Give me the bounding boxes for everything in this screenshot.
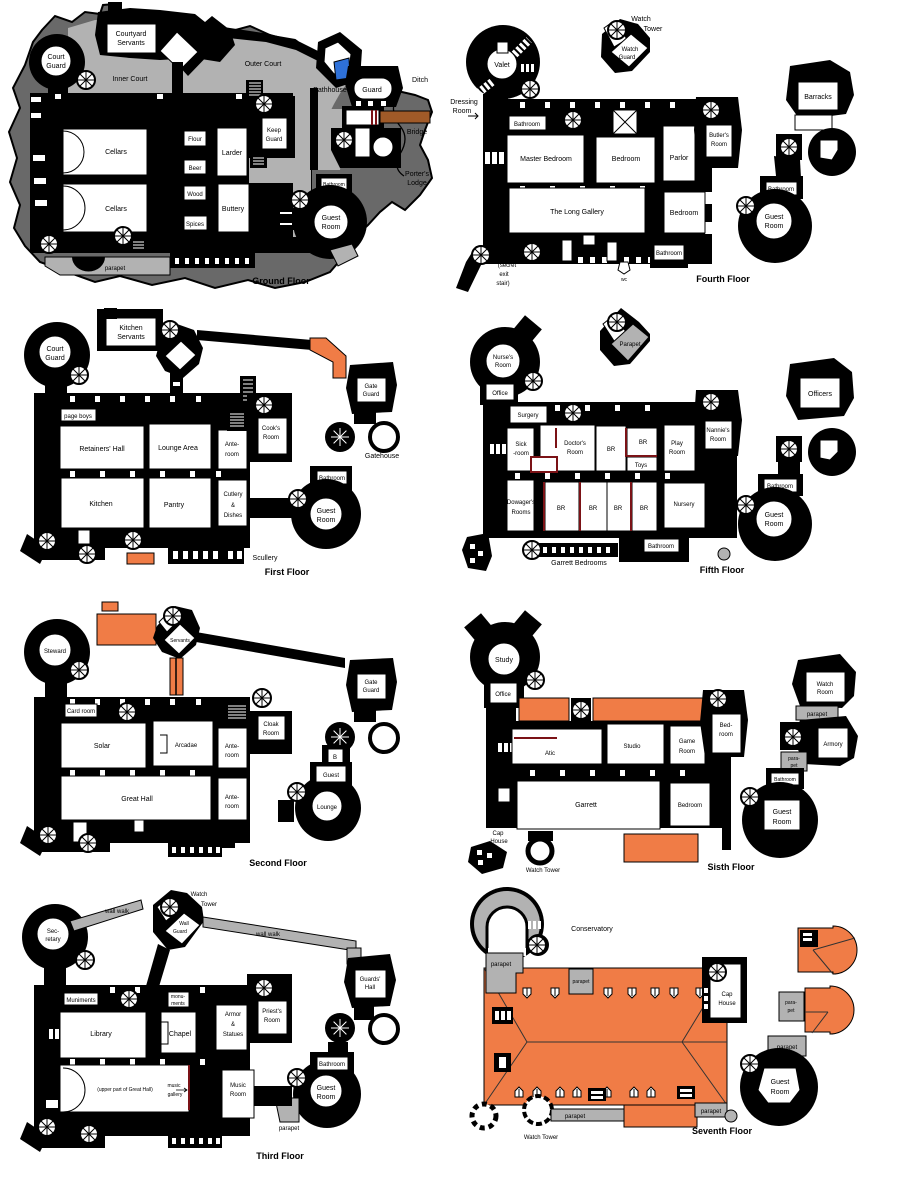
svg-text:Room: Room — [567, 450, 583, 456]
svg-text:parapet: parapet — [573, 979, 591, 985]
svg-text:wc: wc — [107, 312, 114, 318]
svg-text:&: & — [231, 503, 235, 509]
svg-text:Retainers' Hall: Retainers' Hall — [79, 446, 125, 453]
svg-text:BR: BR — [607, 447, 616, 453]
svg-text:Garrett Bedrooms: Garrett Bedrooms — [551, 560, 607, 567]
svg-text:Studio: Studio — [623, 744, 641, 750]
svg-text:Guard: Guard — [266, 137, 283, 143]
svg-text:Gate: Gate — [364, 384, 378, 390]
svg-text:Guest: Guest — [765, 512, 784, 519]
svg-text:BR: BR — [639, 440, 648, 446]
svg-text:Room: Room — [453, 108, 472, 115]
svg-text:wc: wc — [718, 763, 725, 769]
svg-text:Valet: Valet — [494, 62, 509, 69]
svg-text:Kitchen: Kitchen — [89, 501, 112, 508]
svg-text:wc: wc — [229, 539, 236, 545]
svg-text:Bathhouse: Bathhouse — [313, 87, 347, 94]
svg-text:Fourth Floor: Fourth Floor — [696, 274, 750, 284]
svg-text:stair): stair) — [496, 281, 509, 287]
svg-text:Guard: Guard — [619, 55, 636, 61]
svg-text:wc: wc — [41, 423, 48, 429]
svg-text:Watch: Watch — [631, 16, 651, 23]
svg-text:gallery: gallery — [168, 1092, 183, 1098]
svg-text:Room: Room — [264, 1018, 280, 1024]
svg-text:para-: para- — [788, 756, 800, 762]
svg-text:Guard: Guard — [363, 392, 380, 398]
svg-text:Cap: Cap — [492, 831, 504, 837]
svg-text:Lounge: Lounge — [317, 805, 338, 811]
svg-text:Guard: Guard — [173, 929, 187, 935]
svg-text:parapet: parapet — [565, 1114, 586, 1120]
svg-text:Bedroom: Bedroom — [670, 210, 699, 217]
svg-text:wall walk: wall walk — [104, 909, 130, 915]
svg-text:Servants: Servants — [117, 40, 145, 47]
svg-text:Servants: Servants — [170, 638, 190, 644]
svg-text:Wood: Wood — [187, 192, 203, 198]
svg-text:Toys: Toys — [635, 463, 647, 469]
svg-text:Statues: Statues — [223, 1032, 243, 1038]
svg-text:Flour: Flour — [188, 137, 202, 143]
svg-text:pet: pet — [788, 1008, 796, 1014]
svg-text:page boys: page boys — [64, 414, 92, 420]
svg-text:wc: wc — [621, 277, 628, 283]
svg-text:Room: Room — [263, 731, 279, 737]
svg-text:Guards': Guards' — [360, 977, 381, 983]
svg-text:music: music — [167, 1083, 181, 1089]
svg-text:Room: Room — [669, 450, 685, 456]
svg-text:Library: Library — [90, 1031, 112, 1038]
svg-text:Bathroom: Bathroom — [656, 251, 682, 257]
svg-text:Garrett: Garrett — [575, 802, 597, 809]
svg-text:Chapel: Chapel — [169, 1031, 192, 1038]
svg-text:Guest: Guest — [765, 214, 784, 221]
svg-text:Room: Room — [765, 223, 784, 230]
svg-text:Play: Play — [671, 441, 683, 447]
svg-text:Room: Room — [711, 142, 727, 148]
svg-text:Servants: Servants — [117, 334, 145, 341]
svg-text:Bathroom: Bathroom — [319, 1062, 345, 1068]
svg-text:room: room — [719, 732, 733, 738]
svg-text:Gatehouse: Gatehouse — [365, 453, 399, 460]
svg-text:Armor: Armor — [225, 1012, 241, 1018]
svg-text:parapet: parapet — [279, 1126, 300, 1132]
svg-text:Barracks: Barracks — [804, 94, 832, 101]
svg-text:Inner Court: Inner Court — [112, 76, 147, 83]
svg-text:Muniments: Muniments — [66, 998, 95, 1004]
svg-text:Guard: Guard — [363, 688, 380, 694]
svg-text:wc: wc — [488, 464, 495, 470]
svg-text:Ground Floor: Ground Floor — [252, 276, 310, 286]
svg-text:First Floor: First Floor — [265, 567, 310, 577]
svg-text:Bathroom: Bathroom — [648, 544, 674, 550]
svg-text:Watch Tower: Watch Tower — [524, 1135, 558, 1141]
svg-text:Master Bedroom: Master Bedroom — [520, 156, 572, 163]
svg-text:Fifth Floor: Fifth Floor — [700, 565, 745, 575]
svg-text:Third Floor: Third Floor — [256, 1151, 304, 1161]
svg-text:Bathroom: Bathroom — [514, 122, 540, 128]
svg-text:Surgery: Surgery — [517, 413, 538, 419]
svg-text:Room: Room — [771, 1089, 790, 1096]
svg-text:Cutlery: Cutlery — [223, 492, 242, 498]
svg-text:Court: Court — [46, 346, 63, 353]
svg-text:(upper part of Great Hall): (upper part of Great Hall) — [97, 1087, 153, 1093]
svg-text:Cap: Cap — [721, 992, 733, 998]
svg-text:wall walk: wall walk — [255, 932, 281, 938]
svg-text:Bed-: Bed- — [720, 723, 733, 729]
svg-text:Pantry: Pantry — [164, 502, 185, 509]
svg-text:Court: Court — [47, 54, 64, 61]
svg-text:Sisth Floor: Sisth Floor — [708, 862, 755, 872]
svg-text:wc: wc — [786, 468, 793, 474]
svg-text:Music: Music — [230, 1083, 246, 1089]
svg-text:Conservatory: Conservatory — [571, 926, 613, 933]
svg-text:Cloak: Cloak — [263, 722, 279, 728]
svg-text:BR: BR — [557, 506, 566, 512]
svg-text:wc: wc — [488, 185, 495, 191]
svg-text:Dowager's: Dowager's — [507, 500, 535, 506]
svg-text:Parapet: Parapet — [619, 342, 640, 348]
svg-text:wc: wc — [41, 997, 48, 1003]
svg-text:Game: Game — [679, 739, 696, 745]
svg-text:BR: BR — [640, 506, 649, 512]
svg-text:Guest: Guest — [317, 1085, 336, 1092]
svg-text:monu-: monu- — [171, 994, 186, 1000]
svg-text:Room: Room — [817, 690, 833, 696]
svg-text:Room: Room — [230, 1092, 246, 1098]
svg-text:Room: Room — [679, 749, 695, 755]
svg-text:(secret: (secret — [498, 263, 517, 269]
svg-text:Guest: Guest — [771, 1079, 790, 1086]
svg-text:Officers: Officers — [808, 391, 832, 398]
svg-text:parapet: parapet — [491, 962, 512, 968]
svg-text:parapet: parapet — [105, 266, 126, 272]
svg-text:Cellars: Cellars — [105, 149, 127, 156]
svg-text:Guard: Guard — [46, 63, 66, 70]
svg-text:Arcadae: Arcadae — [175, 743, 198, 749]
svg-text:Seventh Floor: Seventh Floor — [692, 1126, 753, 1136]
svg-text:Great Hall: Great Hall — [121, 796, 153, 803]
svg-text:Parlor: Parlor — [670, 155, 689, 162]
svg-text:Rooms: Rooms — [511, 510, 530, 516]
svg-text:Office: Office — [495, 692, 511, 698]
svg-text:Armory: Armory — [823, 742, 842, 748]
svg-text:Ante-: Ante- — [225, 744, 239, 750]
svg-text:Watch: Watch — [622, 47, 639, 53]
svg-text:Office: Office — [492, 391, 508, 397]
svg-text:Beer: Beer — [189, 166, 202, 172]
svg-text:Room: Room — [495, 363, 511, 369]
svg-text:Wall: Wall — [179, 921, 189, 927]
svg-text:Porter's: Porter's — [405, 171, 429, 178]
svg-text:Room: Room — [773, 819, 792, 826]
svg-text:Nursery: Nursery — [673, 502, 694, 508]
svg-text:Gate: Gate — [364, 680, 378, 686]
svg-text:Bedroom: Bedroom — [678, 803, 702, 809]
svg-text:wc: wc — [627, 544, 634, 550]
svg-text:Watch: Watch — [817, 682, 834, 688]
svg-text:Room: Room — [322, 224, 341, 231]
svg-text:The Long Gallery: The Long Gallery — [550, 209, 604, 216]
svg-text:-room: -room — [513, 451, 529, 457]
svg-text:Scullery: Scullery — [253, 555, 278, 562]
svg-text:Butler's: Butler's — [709, 133, 729, 139]
svg-text:&: & — [231, 1022, 235, 1028]
svg-text:Solar: Solar — [94, 743, 111, 750]
svg-text:Nannie's: Nannie's — [706, 428, 729, 434]
svg-text:Tower: Tower — [644, 26, 663, 33]
svg-text:wc: wc — [41, 709, 48, 715]
svg-text:Buttery: Buttery — [222, 206, 245, 213]
svg-text:Lounge Area: Lounge Area — [158, 445, 198, 452]
svg-text:Cook's: Cook's — [262, 426, 280, 432]
svg-text:Ante-: Ante- — [225, 442, 239, 448]
svg-text:B: B — [333, 755, 337, 761]
svg-text:retary: retary — [45, 937, 60, 943]
svg-text:Doctor's: Doctor's — [564, 441, 586, 447]
svg-text:Room: Room — [317, 517, 336, 524]
svg-text:Sec-: Sec- — [47, 929, 59, 935]
svg-text:exit: exit — [499, 272, 509, 278]
svg-text:Outer Court: Outer Court — [245, 61, 282, 68]
svg-text:Second Floor: Second Floor — [249, 858, 307, 868]
svg-text:Larder: Larder — [222, 150, 243, 157]
svg-text:room: room — [225, 452, 239, 458]
svg-text:Priest's: Priest's — [262, 1009, 281, 1015]
svg-text:parapet: parapet — [807, 712, 828, 718]
svg-text:Watch Tower: Watch Tower — [526, 868, 560, 874]
svg-text:room: room — [225, 753, 239, 759]
svg-text:Room: Room — [765, 521, 784, 528]
svg-text:parapet: parapet — [701, 1109, 722, 1115]
svg-text:Atic: Atic — [545, 751, 555, 757]
svg-text:Dishes: Dishes — [224, 513, 242, 519]
svg-text:wc: wc — [224, 840, 231, 846]
svg-text:BR: BR — [589, 506, 598, 512]
svg-text:Room: Room — [263, 435, 279, 441]
svg-text:Tower: Tower — [201, 902, 217, 908]
svg-text:wc: wc — [112, 3, 119, 9]
svg-text:Room: Room — [710, 437, 726, 443]
svg-text:ments: ments — [171, 1001, 185, 1007]
svg-text:Ante-: Ante- — [225, 795, 239, 801]
svg-text:Steward: Steward — [44, 649, 66, 655]
svg-text:House: House — [718, 1001, 736, 1007]
svg-text:Watch: Watch — [191, 892, 208, 898]
svg-text:Guest: Guest — [317, 508, 336, 515]
svg-text:Guard: Guard — [45, 355, 65, 362]
svg-text:Cellars: Cellars — [105, 206, 127, 213]
svg-text:Keep: Keep — [267, 128, 282, 134]
svg-text:Bedroom: Bedroom — [612, 156, 641, 163]
svg-text:BR: BR — [614, 506, 623, 512]
svg-text:Guest: Guest — [323, 773, 339, 779]
svg-text:Spices: Spices — [186, 222, 204, 228]
svg-text:Guest: Guest — [773, 809, 792, 816]
svg-text:Lodge: Lodge — [407, 180, 427, 187]
svg-text:Nurse's: Nurse's — [493, 355, 513, 361]
svg-text:para-: para- — [785, 1000, 797, 1006]
svg-text:room: room — [225, 804, 239, 810]
svg-text:Hall: Hall — [365, 985, 375, 991]
svg-text:Bridge: Bridge — [407, 129, 427, 136]
svg-text:Courtyard: Courtyard — [116, 31, 147, 38]
svg-text:Room: Room — [317, 1094, 336, 1101]
svg-text:Ditch: Ditch — [412, 77, 428, 84]
svg-text:Kitchen: Kitchen — [119, 325, 142, 332]
svg-text:Card room: Card room — [67, 709, 95, 715]
svg-text:Sick: Sick — [515, 442, 527, 448]
svg-text:Guest: Guest — [322, 215, 341, 222]
svg-text:Guard: Guard — [362, 87, 382, 94]
svg-text:Dressing: Dressing — [450, 99, 478, 106]
svg-text:Study: Study — [495, 657, 513, 664]
